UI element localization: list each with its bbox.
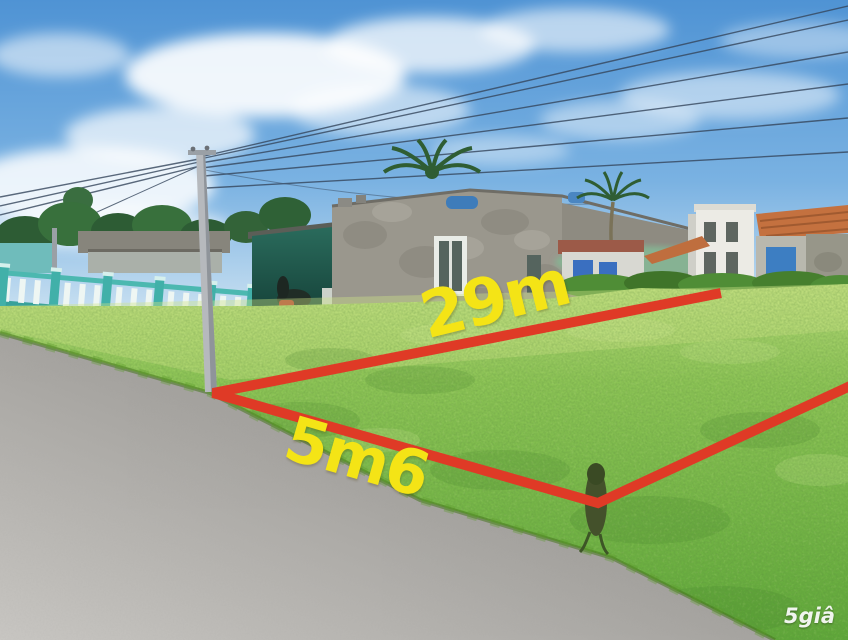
roof-vent <box>338 198 352 207</box>
land-plot-photo: 29m 5m6 5giâ <box>0 0 848 640</box>
water-tank <box>446 196 478 209</box>
watermark-text: 5giâ <box>784 604 835 628</box>
